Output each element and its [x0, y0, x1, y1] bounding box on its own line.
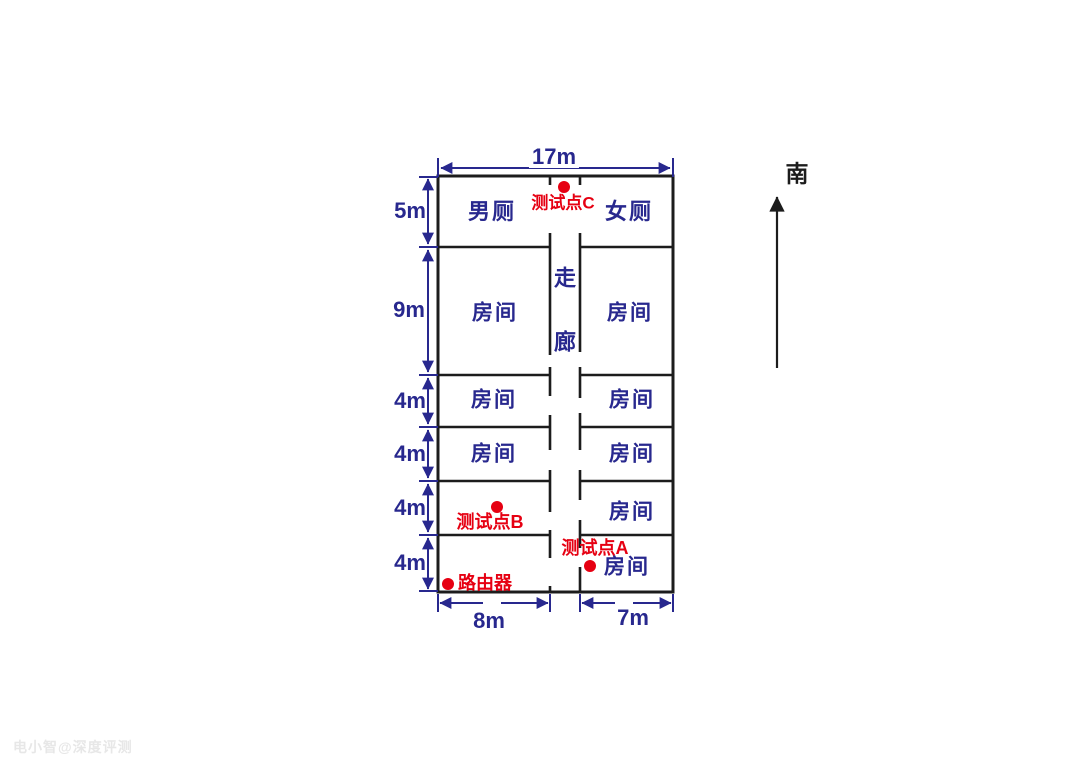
room-label-men-toilet: 男厕 — [468, 201, 516, 223]
watermark-text: 电小智@深度评测 — [13, 737, 133, 757]
room-label-right-row1: 房间 — [609, 390, 655, 411]
floor-plan-diagram: 17m 5m 9m 4m 4m 4m 4m 8m 7m 男厕 女厕 走廊 房间 … — [0, 0, 1080, 775]
room-label-right-row3: 房间 — [609, 502, 655, 523]
dim-row-4m-1: 4m — [394, 390, 426, 412]
compass-south-label: 南 — [786, 163, 809, 186]
room-label-left-row1: 房间 — [471, 390, 517, 411]
dim-row-5m: 5m — [394, 200, 426, 222]
room-label-women-toilet: 女厕 — [605, 201, 653, 223]
room-label-left-row2: 房间 — [471, 444, 517, 465]
dim-row-4m-4: 4m — [394, 552, 426, 574]
test-point-a-label: 测试点A — [562, 539, 629, 557]
dim-row-9m: 9m — [393, 299, 425, 321]
dim-bottom-right: 7m — [617, 607, 649, 629]
dim-bottom-left: 8m — [473, 610, 505, 632]
test-point-c-label: 测试点C — [531, 195, 594, 212]
router-dot — [442, 578, 454, 590]
dimension-left-chain — [419, 177, 438, 591]
room-label-right-9m: 房间 — [607, 303, 653, 324]
room-label-right-row4: 房间 — [604, 557, 650, 578]
room-label-corridor: 走廊 — [552, 266, 574, 394]
dim-row-4m-3: 4m — [394, 497, 426, 519]
test-point-b-dot — [491, 501, 503, 513]
test-point-a-dot — [584, 560, 596, 572]
floor-plan-svg — [0, 0, 1080, 775]
dim-row-4m-2: 4m — [394, 443, 426, 465]
dim-total-width: 17m — [529, 146, 579, 168]
room-label-left-9m: 房间 — [472, 303, 518, 324]
router-label: 路由器 — [458, 574, 512, 592]
test-point-c-dot — [558, 181, 570, 193]
room-label-right-row2: 房间 — [609, 444, 655, 465]
test-point-b-label: 测试点B — [457, 513, 524, 531]
